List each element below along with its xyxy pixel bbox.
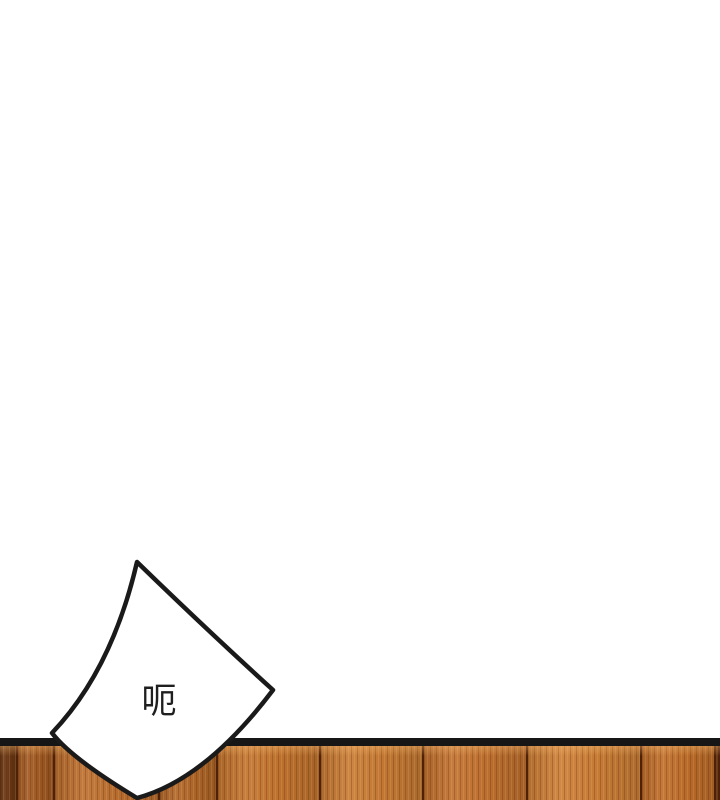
- comic-panel: 呃: [0, 0, 720, 800]
- wood-plank: [0, 746, 18, 800]
- wood-plank: [321, 746, 424, 800]
- wood-plank: [642, 746, 716, 800]
- speech-text: 呃: [124, 682, 194, 722]
- wood-plank: [716, 746, 720, 800]
- wood-plank: [528, 746, 642, 800]
- wood-plank: [424, 746, 528, 800]
- speech-bubble-shape: [52, 562, 273, 798]
- speech-bubble: [30, 545, 290, 800]
